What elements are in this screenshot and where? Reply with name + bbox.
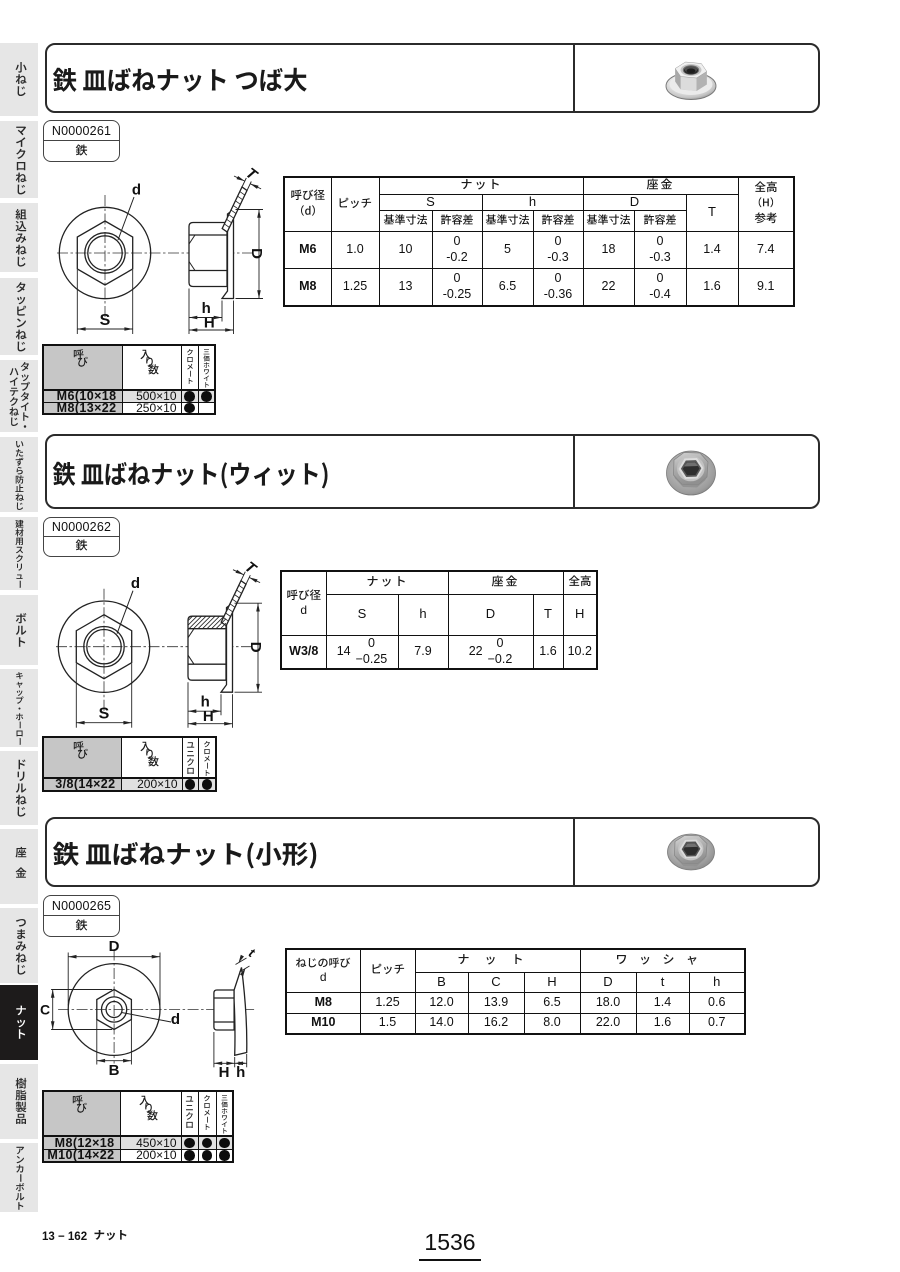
svg-text:t: t: [246, 945, 258, 960]
svg-text:D: D: [109, 938, 120, 955]
svg-text:d: d: [171, 1011, 180, 1028]
svg-text:h: h: [236, 1064, 245, 1081]
svg-text:H: H: [219, 1064, 230, 1081]
svg-text:B: B: [109, 1062, 120, 1079]
svg-text:C: C: [40, 1002, 50, 1018]
